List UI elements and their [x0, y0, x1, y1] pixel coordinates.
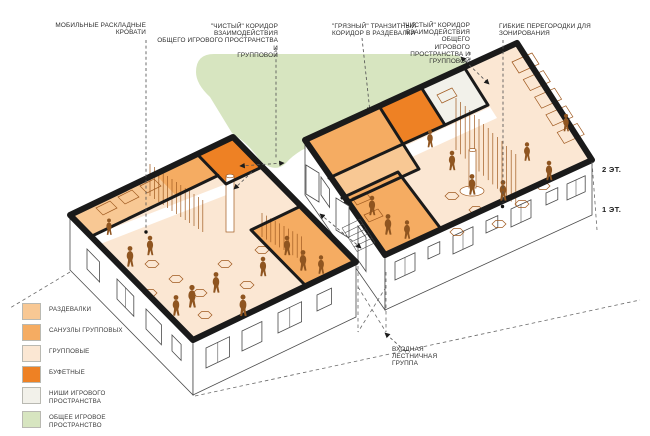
- label-floor-2: 2 ЭТ.: [602, 165, 621, 174]
- legend-item-bathrooms: САНУЗЛЫ ГРУППОВЫХ: [22, 324, 133, 341]
- legend-swatch: [22, 387, 41, 404]
- legend-item-pantries: БУФЕТНЫЕ: [22, 366, 133, 383]
- axonometric-scheme: МОБИЛЬНЫЕ РАСКЛАДНЫЕ КРОВАТИ "ЧИСТЫЙ" КО…: [0, 0, 650, 436]
- legend-swatch: [22, 303, 41, 320]
- legend-swatch: [22, 345, 41, 362]
- legend-item-play-niches: НИШИ ИГРОВОГО ПРОСТРАНСТВА: [22, 387, 133, 406]
- legend-item-group-rooms: ГРУППОВЫЕ: [22, 345, 133, 362]
- legend-swatch: [22, 366, 41, 383]
- legend-swatch: [22, 411, 41, 428]
- legend-swatch: [22, 324, 41, 341]
- label-clean-corridor-right: "ЧИСТЫЙ" КОРИДОР ВЗАИМОДЕЙСТВИЯ ОБЩЕГО И…: [385, 22, 470, 65]
- legend-item-common-play-space: ОБЩЕЕ ИГРОВОЕ ПРОСТРАНСТВО: [22, 411, 133, 430]
- label-floor-1: 1 ЭТ.: [602, 205, 621, 214]
- legend-item-cloakrooms: РАЗДЕВАЛКИ: [22, 303, 133, 320]
- label-mobile-beds: МОБИЛЬНЫЕ РАСКЛАДНЫЕ КРОВАТИ: [26, 22, 146, 36]
- label-clean-corridor-left: "ЧИСТЫЙ" КОРИДОР ВЗАИМОДЕЙСТВИЯ ОБЩЕГО И…: [157, 23, 278, 59]
- label-entrance-group: ВХОДНАЯ ЛЕСТНИЧНАЯ ГРУППА: [392, 346, 462, 368]
- label-flexible-partitions: ГИБКИЕ ПЕРЕГОРОДКИ ДЛЯ ЗОНИРОВАНИЯ: [499, 23, 594, 37]
